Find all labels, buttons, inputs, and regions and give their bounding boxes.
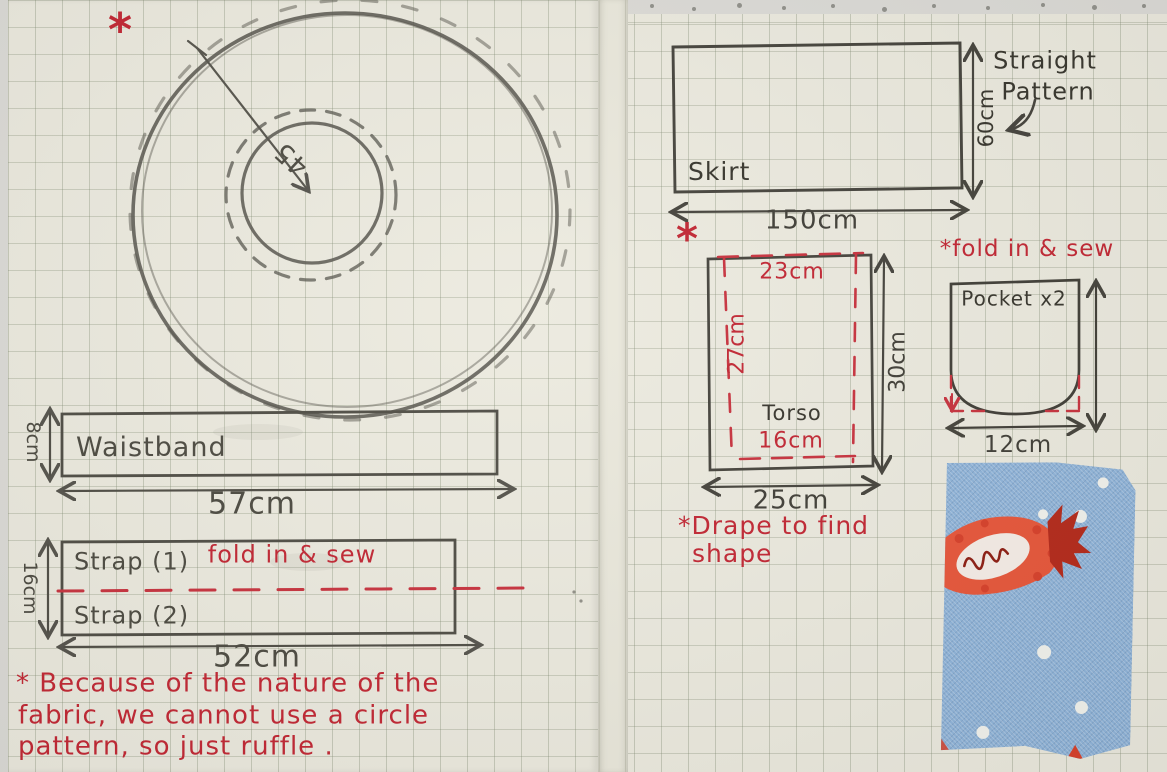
note-asterisk: * bbox=[676, 220, 699, 258]
skirt-label: Skirt bbox=[688, 159, 750, 185]
torso-top-width-label: 23cm bbox=[759, 260, 825, 283]
footnote-line-2: fabric, we cannot use a circle bbox=[18, 702, 429, 729]
waistband-height-label: 8cm bbox=[22, 421, 42, 462]
torso-bottom-width-label: 16cm bbox=[758, 429, 824, 452]
fold-line-dashed bbox=[58, 588, 530, 591]
straight-pattern-note-line2: Pattern bbox=[1001, 79, 1094, 104]
left-page-pencil-sketch bbox=[8, 0, 598, 772]
strap-height-label: 16cm bbox=[19, 561, 39, 614]
strap-fold-note: fold in & sew bbox=[208, 542, 376, 567]
left-notebook-page: * 45 Waistband 8cm 57cm Strap (1) fold i… bbox=[8, 0, 598, 772]
strap1-label: Strap (1) bbox=[74, 549, 189, 574]
waistband-label: Waistband bbox=[76, 434, 227, 462]
note-asterisk: * bbox=[108, 10, 133, 51]
circle-pattern bbox=[130, 0, 570, 420]
strap2-label: Strap (2) bbox=[74, 603, 189, 628]
torso-inner-height-label: 27cm bbox=[725, 313, 748, 375]
footnote-line-1: * Because of the nature of the bbox=[16, 670, 439, 697]
torso-outer-height-label: 30cm bbox=[886, 331, 909, 393]
pocket-label: Pocket x2 bbox=[961, 289, 1067, 310]
right-notebook-page: Skirt 60cm Straight Pattern 150cm * 23cm… bbox=[628, 14, 1167, 772]
torso-label: Torso bbox=[762, 402, 822, 424]
pocket-width-label: 12cm bbox=[984, 433, 1052, 457]
candy-wrapper-print bbox=[939, 460, 1136, 760]
fabric-swatch bbox=[939, 460, 1136, 760]
pocket-fold-note: *fold in & sew bbox=[940, 237, 1114, 261]
drape-note-line2: shape bbox=[692, 541, 772, 567]
straight-pattern-note-line1: Straight bbox=[993, 48, 1097, 73]
footnote-line-3: pattern, so just ruffle . bbox=[18, 733, 334, 760]
waistband-width-label: 57cm bbox=[208, 488, 296, 520]
skirt-height-label: 60cm bbox=[975, 89, 997, 148]
notebook-spine bbox=[598, 0, 628, 772]
drape-note-line1: *Drape to find bbox=[678, 513, 869, 539]
skirt-width-label: 150cm bbox=[765, 207, 859, 234]
notebook-photo: * 45 Waistband 8cm 57cm Strap (1) fold i… bbox=[0, 0, 1167, 772]
